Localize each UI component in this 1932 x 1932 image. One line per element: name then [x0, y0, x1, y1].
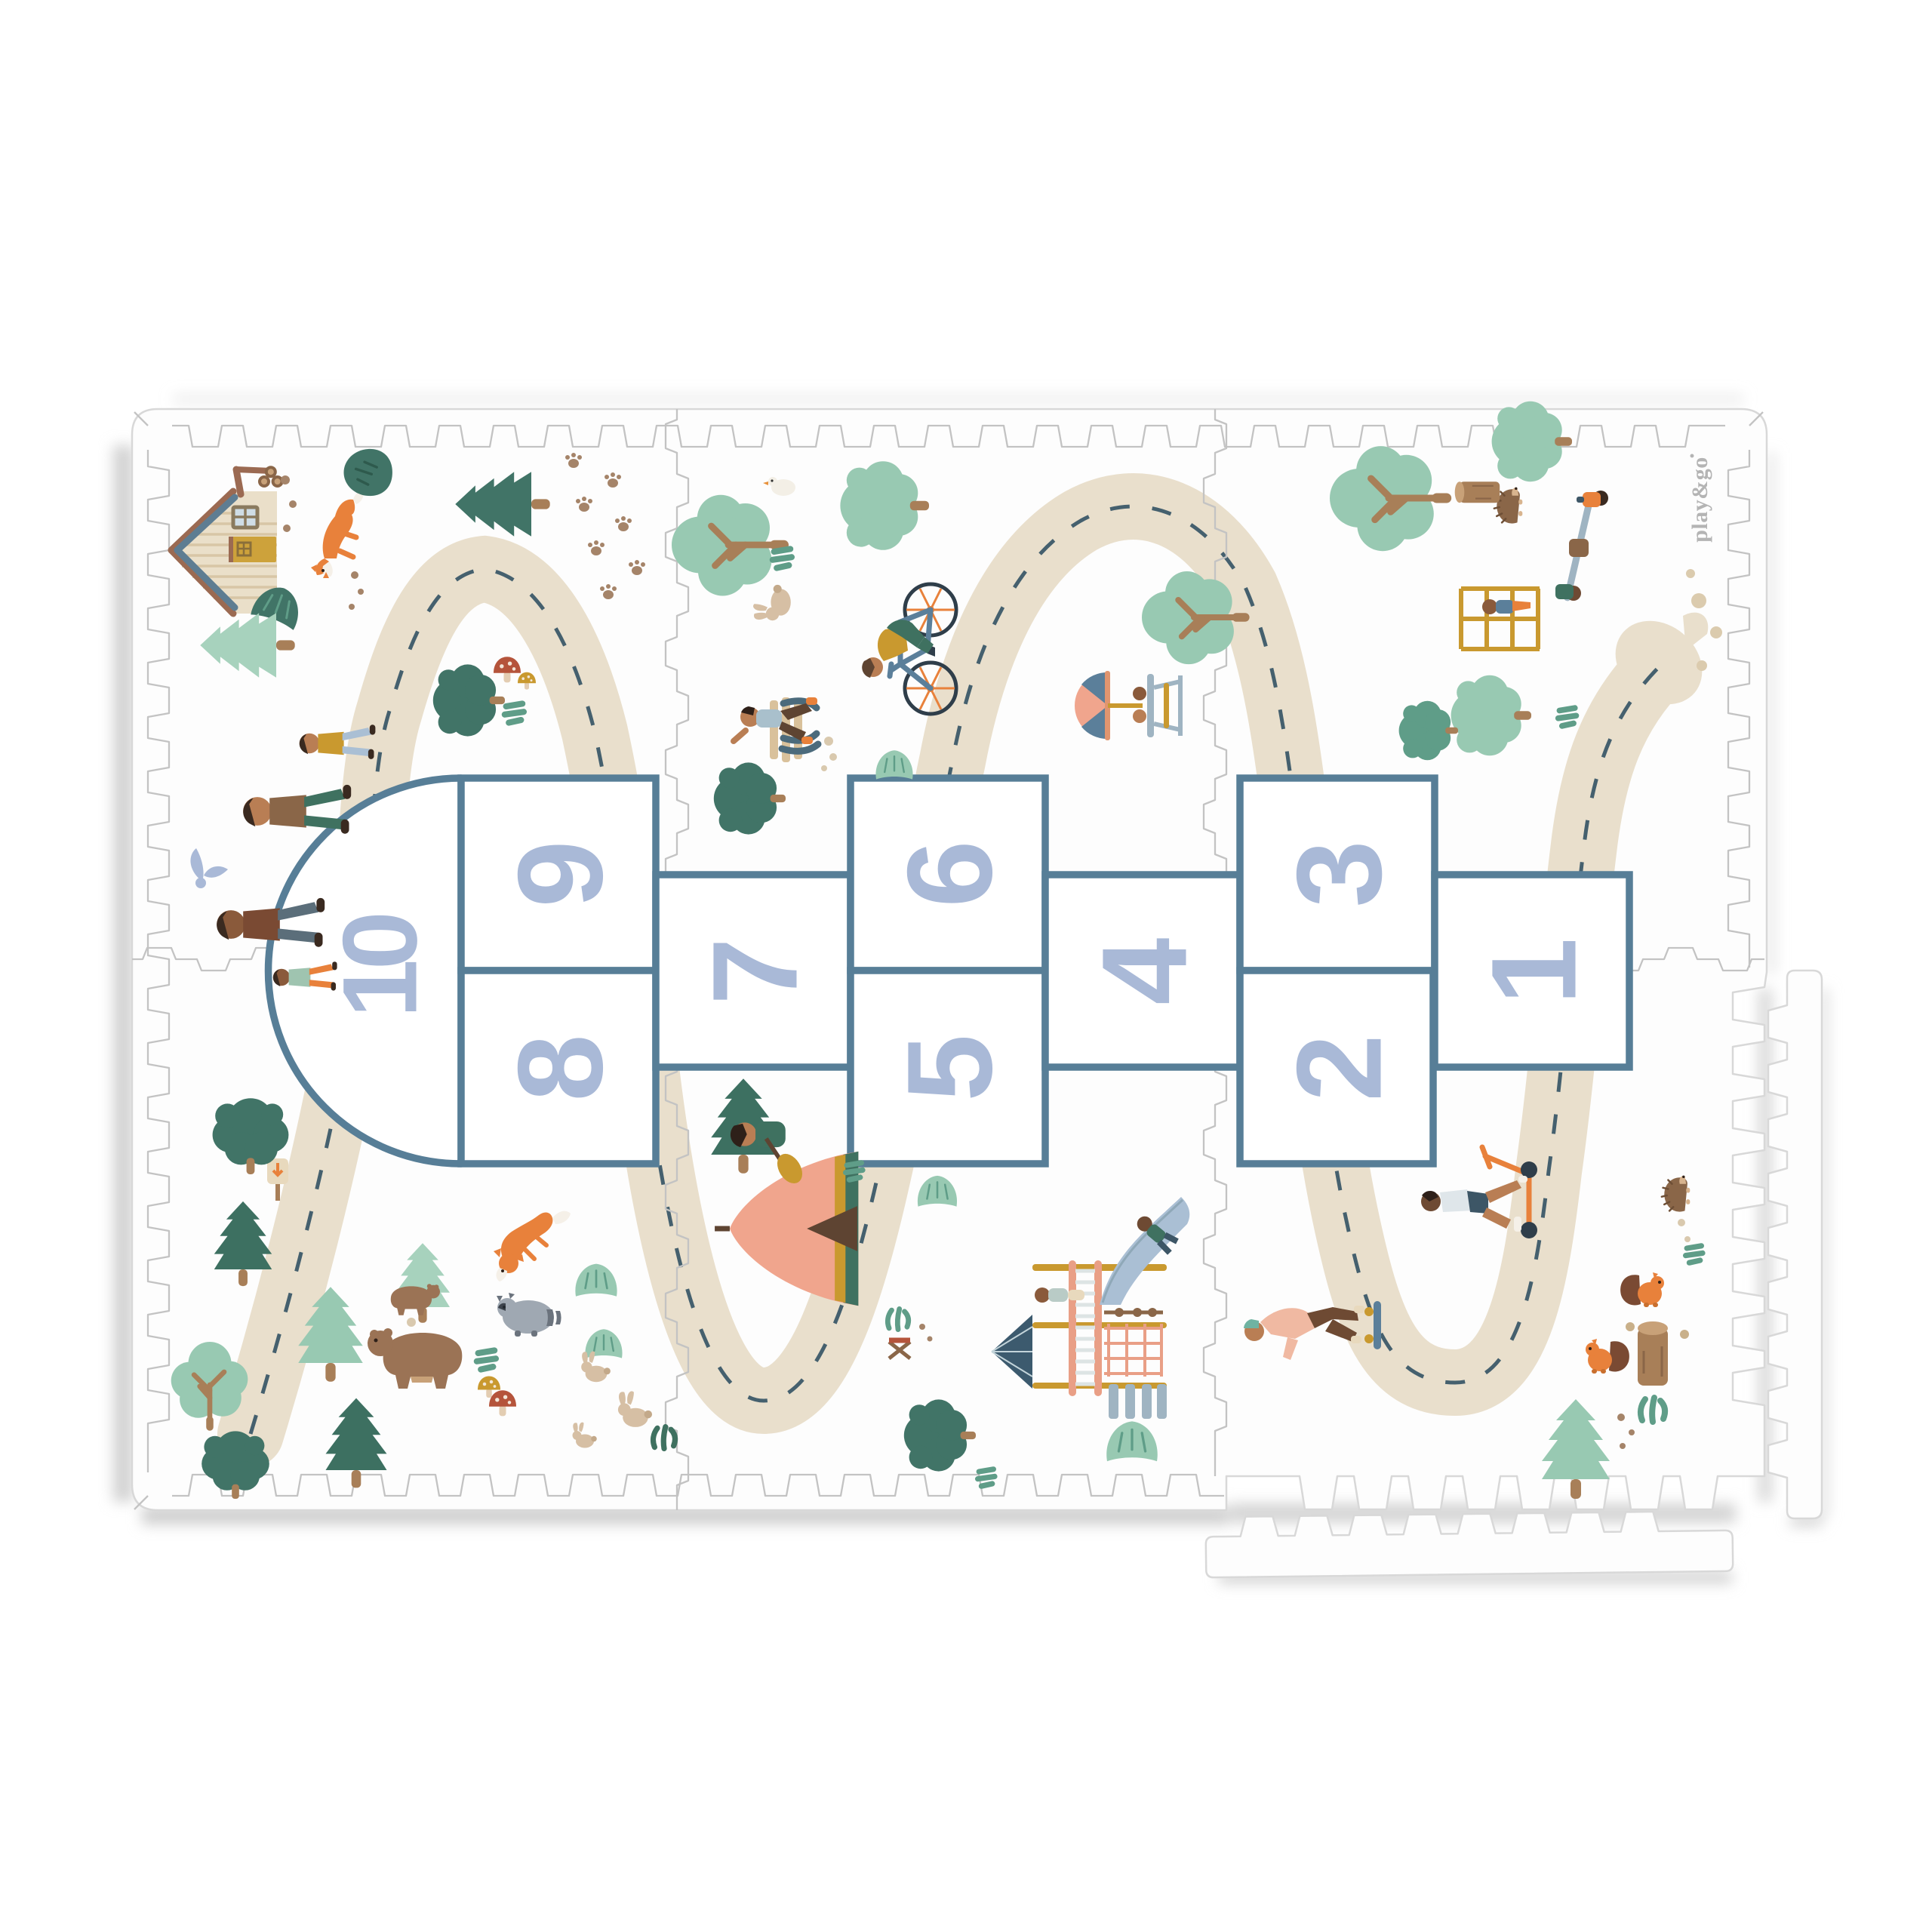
svg-text:3: 3 [1272, 841, 1407, 908]
svg-text:1: 1 [1466, 938, 1601, 1005]
svg-text:10: 10 [321, 915, 439, 1018]
svg-text:2: 2 [1272, 1035, 1407, 1102]
svg-text:5: 5 [882, 1035, 1017, 1102]
svg-text:6: 6 [882, 841, 1017, 908]
svg-text:9: 9 [493, 841, 628, 908]
svg-text:8: 8 [493, 1035, 628, 1102]
svg-text:7: 7 [688, 938, 823, 1005]
svg-text:play&go: play&go [1687, 457, 1712, 543]
svg-text:4: 4 [1077, 937, 1212, 1004]
